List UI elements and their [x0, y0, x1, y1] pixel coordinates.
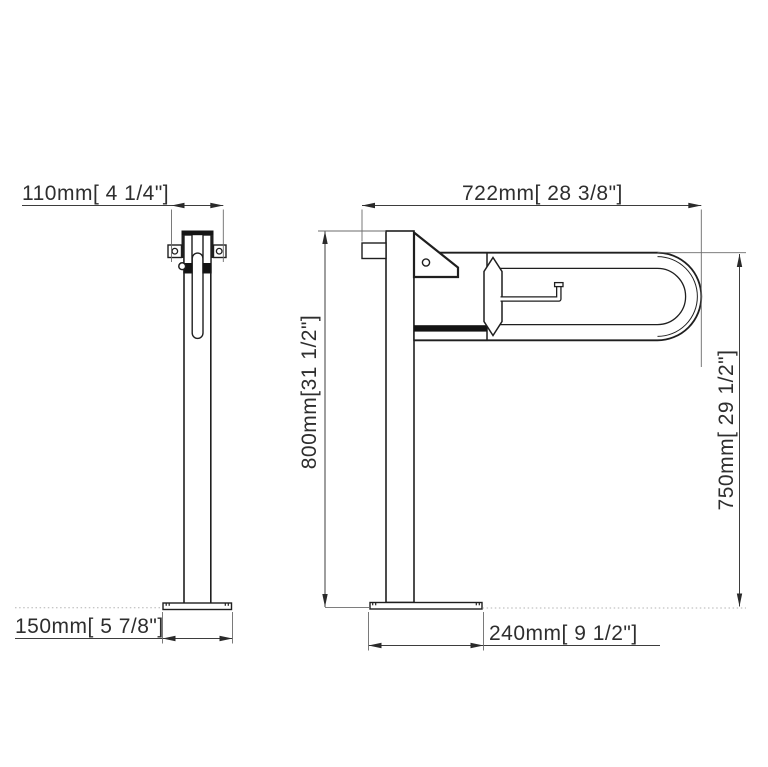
- paper-holder-cap: [555, 283, 563, 287]
- gusset-hole: [422, 259, 429, 266]
- arrowhead-left-icon: [362, 203, 375, 208]
- arrowhead-left-icon: [369, 643, 382, 648]
- dim-overall-length-label: 722mm[ 28 3/8"]: [462, 182, 623, 205]
- arrowhead-down-icon: [737, 594, 742, 607]
- arrowhead-right-icon: [471, 643, 484, 648]
- tab-hole-left: [172, 248, 178, 254]
- arrowhead-right-icon: [210, 203, 223, 208]
- release-clip: [179, 263, 186, 270]
- dim-rail-height-label: 750mm[ 29 1/2"]: [715, 350, 738, 511]
- side-view: [362, 231, 746, 609]
- base-plate-side: [370, 603, 482, 610]
- paper-holder-outline: [501, 287, 559, 299]
- grab-rail-drawing: 110mm[ 4 1/4"] 722mm[ 28 3/8"] 800mm[31 …: [0, 0, 768, 767]
- rail-slot: [192, 253, 203, 338]
- wall-spacer-knob: [362, 243, 386, 259]
- tab-hole-right: [216, 248, 222, 254]
- u-bend-inner-arc: [658, 268, 686, 324]
- u-bend-outer-arc: [658, 253, 702, 341]
- pivot-joint: [484, 258, 502, 336]
- base-plate-front: [163, 603, 232, 610]
- arrowhead-right-icon: [688, 203, 701, 208]
- arrowhead-left-icon: [172, 203, 185, 208]
- arrowhead-right-icon: [220, 636, 233, 641]
- dim-base-width-label: 150mm[ 5 7/8"]: [15, 615, 164, 638]
- technical-drawing-page: 110mm[ 4 1/4"] 722mm[ 28 3/8"] 800mm[31 …: [0, 0, 768, 767]
- arrowhead-down-icon: [322, 594, 327, 607]
- hinge-housing-band: [414, 325, 487, 331]
- arrowhead-up-icon: [322, 231, 327, 244]
- front-view: [15, 231, 232, 610]
- dim-bracket-width-label: 110mm[ 4 1/4"]: [22, 182, 169, 205]
- bracket-cap: [182, 231, 214, 236]
- hinge-band-right: [203, 263, 211, 273]
- post-side: [386, 231, 414, 603]
- dim-base-depth-label: 240mm[ 9 1/2"]: [489, 622, 638, 645]
- arrowhead-left-icon: [163, 636, 176, 641]
- arrowhead-up-icon: [737, 254, 742, 267]
- dim-post-height-label: 800mm[31 1/2"]: [298, 315, 321, 470]
